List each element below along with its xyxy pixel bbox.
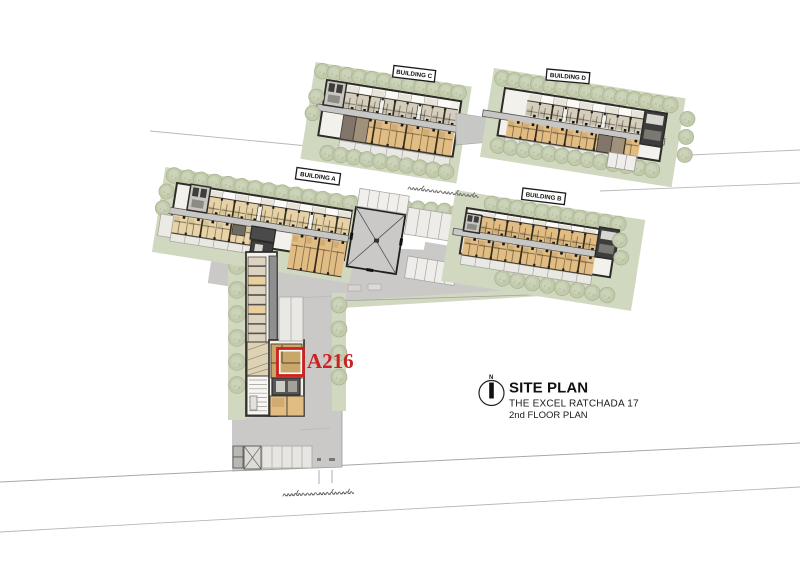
svg-text:THE EXCEL RATCHADA 17: THE EXCEL RATCHADA 17 bbox=[509, 399, 639, 410]
svg-text:2nd FLOOR PLAN: 2nd FLOOR PLAN bbox=[509, 410, 588, 421]
svg-text:SITE PLAN: SITE PLAN bbox=[509, 380, 588, 397]
svg-text:N: N bbox=[489, 375, 493, 381]
svg-text:A216: A216 bbox=[307, 349, 354, 373]
